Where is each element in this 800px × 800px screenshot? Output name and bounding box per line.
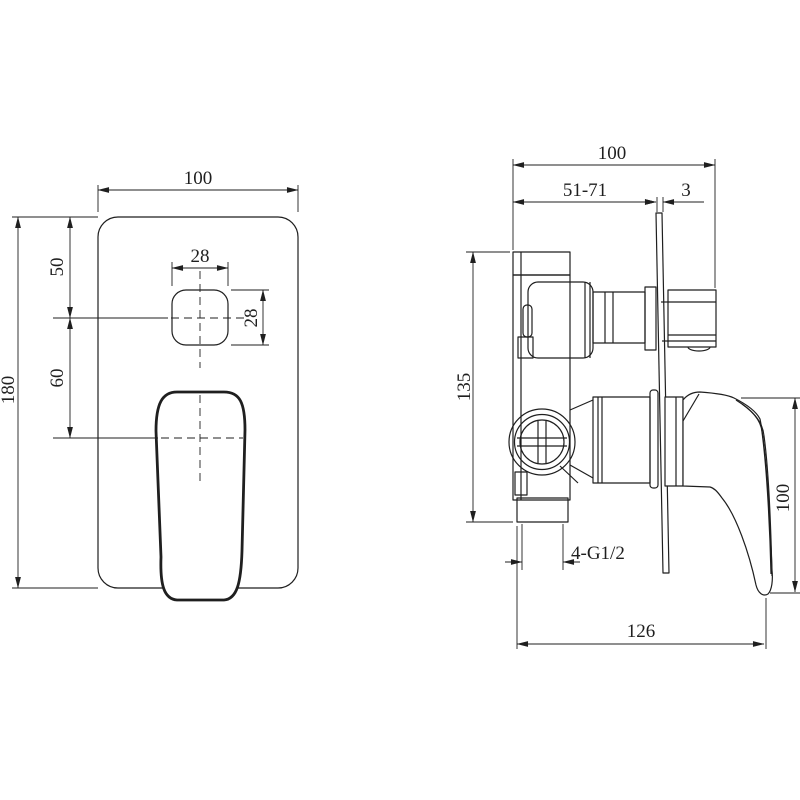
dim-side-plate-thickness: 3 [681, 180, 691, 201]
front-view: 100 28 28 50 60 180 [0, 168, 298, 600]
side-view: 100 51-71 3 135 100 4-G1/2 126 [454, 143, 800, 649]
front-handle [156, 392, 245, 600]
mixer-valve-drawing: 100 28 28 50 60 180 [0, 0, 800, 800]
dim-side-overall-depth: 126 [627, 621, 656, 642]
side-dimensions [466, 159, 800, 649]
dim-front-top-offset: 50 [47, 258, 68, 277]
valve-body [509, 252, 658, 522]
dim-side-body-height: 135 [454, 373, 475, 402]
dim-front-hole-height: 28 [241, 309, 262, 328]
dim-front-mid-offset: 60 [47, 369, 68, 388]
dim-side-thread-spec: 4-G1/2 [571, 543, 625, 564]
dim-front-plate-width: 100 [184, 168, 213, 189]
side-diverter-knob [661, 290, 716, 351]
side-handle [665, 392, 772, 595]
hole-centerlines [53, 271, 248, 368]
technical-drawing-page: 100 28 28 50 60 180 [0, 0, 800, 800]
dim-side-overall-width: 100 [598, 143, 627, 164]
dim-front-hole-width: 28 [191, 246, 210, 267]
dim-front-plate-height: 180 [0, 376, 19, 405]
dim-side-depth-range: 51-71 [563, 180, 607, 201]
dim-side-handle-height: 100 [773, 484, 794, 513]
